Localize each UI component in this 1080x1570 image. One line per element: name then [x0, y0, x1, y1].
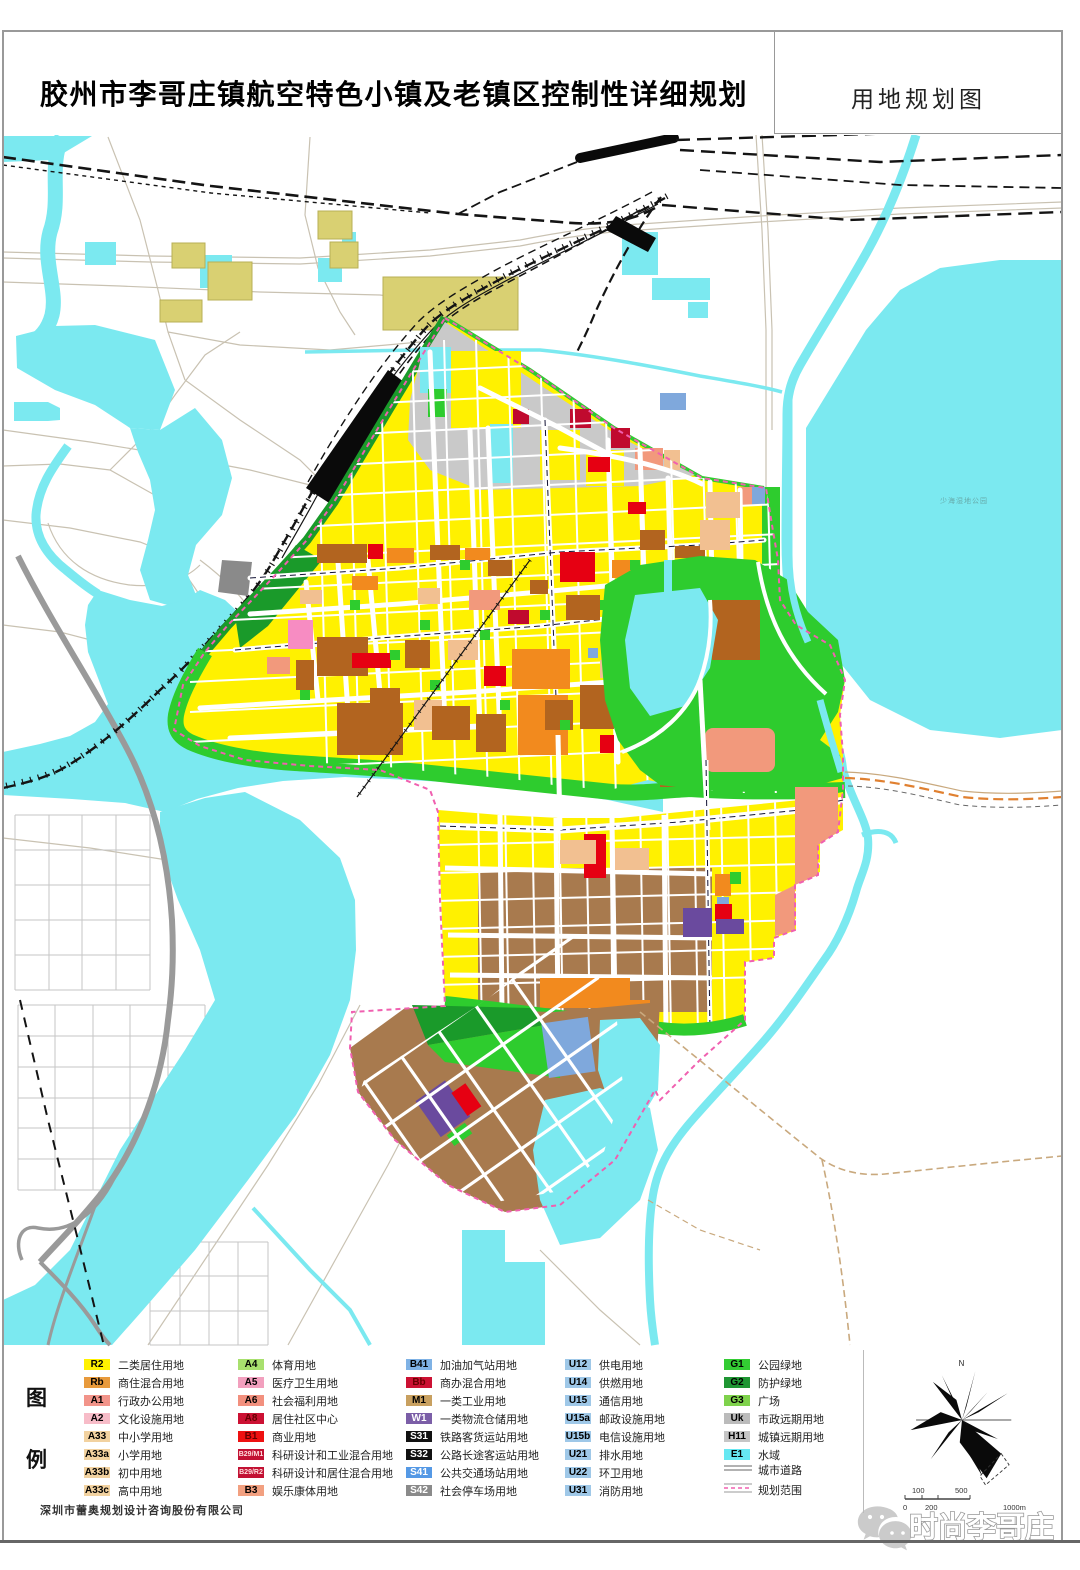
- svg-text:1000m: 1000m: [1003, 1503, 1026, 1512]
- svg-text:N: N: [959, 1359, 965, 1368]
- svg-text:500: 500: [955, 1486, 968, 1495]
- svg-text:0: 0: [903, 1503, 907, 1512]
- svg-text:200: 200: [925, 1503, 938, 1512]
- svg-text:少海湿地公园: 少海湿地公园: [940, 496, 988, 505]
- svg-text:100: 100: [912, 1486, 925, 1495]
- svg-text:时尚李哥庄: 时尚李哥庄: [909, 1510, 1054, 1544]
